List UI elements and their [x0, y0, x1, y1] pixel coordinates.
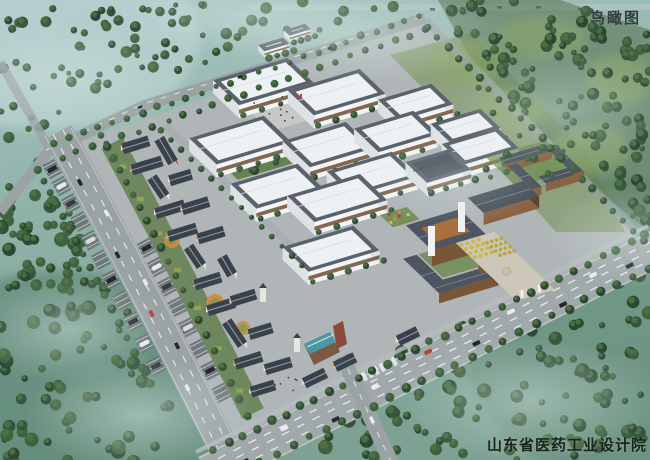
aerial-rendering-image: 鸟瞰图 山东省医药工业设计院: [0, 0, 650, 460]
gate-post: [521, 290, 524, 298]
hall-tower: [428, 226, 435, 256]
flag: [300, 94, 302, 99]
scene-canvas: [0, 0, 650, 460]
